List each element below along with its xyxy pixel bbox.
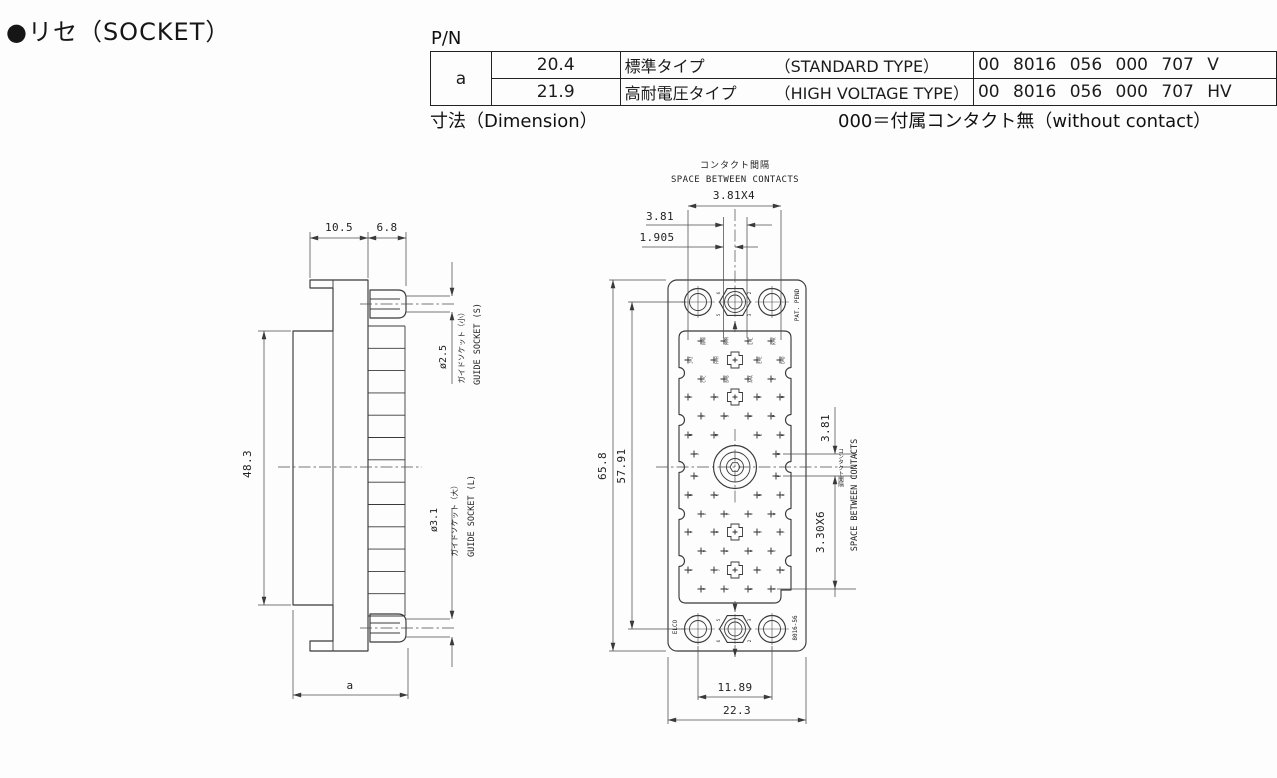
contact-label: J [695, 453, 700, 455]
contact-label: C C [702, 375, 707, 383]
guide-small-diameter: ø2.5 [438, 345, 449, 369]
space-between-contacts-jp-top: コンタクト間隔 [700, 160, 770, 171]
contact-label: B [758, 493, 763, 496]
dim-65-8: 65.8 [596, 452, 609, 480]
dim-11-89: 11.89 [717, 681, 752, 694]
guide-small-label-en: GUIDE SOCKET (S) [473, 303, 483, 385]
contact-label: S [725, 414, 730, 417]
side-view-dimensions [258, 232, 452, 699]
contact-label: K [781, 433, 786, 436]
contact-label: R [749, 414, 754, 417]
contact-label: z [702, 512, 707, 515]
coding-digit: 6 [716, 291, 722, 294]
contact-label: U [781, 395, 786, 398]
polarizer-cross [733, 358, 738, 363]
contact-label: n [725, 549, 730, 552]
contact-label: M [715, 433, 720, 436]
dim-3-81-right: 3.81 [819, 414, 832, 442]
contact-label: E [777, 474, 782, 477]
space-between-contacts-en-side: SPACE BETWEEN CONTACTS [850, 439, 860, 552]
contact-label: w [772, 512, 777, 515]
guide-large-label-jp: ガイドソケット（大） [449, 482, 459, 557]
dim-a: a [346, 679, 353, 692]
coding-digit: 2 [747, 639, 753, 642]
contact-label: H [777, 452, 782, 455]
space-between-contacts-jp-side: コンタクト間隔 [838, 448, 844, 489]
model-marking: 8016-56 [792, 615, 799, 641]
contact-label: L L [749, 337, 754, 345]
contact-label: p [702, 549, 707, 552]
contact-label: k [689, 568, 694, 571]
coding-digit: 2 [747, 291, 753, 294]
contact-label: V [758, 395, 763, 398]
contact-label: A A [749, 375, 754, 383]
contact-label: F [695, 474, 700, 477]
contact-label: H H [715, 356, 720, 364]
technical-drawing: 10.5 6.8 48.3 a ø2.5 ガイドソケット（小） GUIDE SO… [0, 0, 1277, 778]
side-view: 10.5 6.8 48.3 a ø2.5 ガイドソケット（小） GUIDE SO… [241, 221, 483, 699]
contact-label: b [749, 587, 754, 590]
contact-label: m [749, 549, 754, 552]
contact-label: e [781, 568, 786, 571]
contact-label: D [689, 493, 694, 496]
contact-label: T [702, 414, 707, 417]
contact-label: N [689, 433, 694, 436]
dim-57-91: 57.91 [615, 448, 628, 483]
contact-label: f [758, 568, 763, 571]
dim-1-905: 1.905 [639, 231, 674, 244]
coding-digit: 5 [716, 313, 722, 316]
contact-label: d [702, 587, 707, 590]
contact-label: A [781, 493, 786, 496]
space-between-contacts-en-top: SPACE BETWEEN CONTACTS [671, 175, 799, 185]
dim-3-81x4: 3.81X4 [713, 189, 755, 202]
contact-label: N N [702, 337, 707, 345]
contact-label: P [772, 414, 777, 417]
front-view: N NM ML LK KJ JH HE ED DC CB BA AZYXVUTS… [596, 160, 860, 724]
coding-digit: 3 [747, 618, 753, 621]
dim-48-3: 48.3 [241, 450, 254, 478]
contact-label: s [758, 530, 763, 533]
contact-label: j [715, 569, 720, 571]
coding-digit: 6 [716, 639, 722, 642]
contact-label: r [781, 530, 786, 533]
dim-3-81-top: 3.81 [646, 210, 674, 223]
contact-label: x [749, 512, 754, 515]
front-view-dimensions [609, 206, 856, 724]
contact-label: Y [689, 395, 694, 398]
coding-digit: 5 [716, 618, 722, 621]
contact-label: J J [689, 356, 694, 363]
contact-label: M M [725, 337, 730, 345]
coding-digit: 3 [747, 313, 753, 316]
dim-10-5: 10.5 [325, 221, 353, 234]
dim-6-8: 6.8 [376, 221, 397, 234]
dim-22-3: 22.3 [723, 704, 751, 717]
brand-marking: ELCO [672, 619, 679, 634]
contact-label: B B [725, 375, 730, 383]
contact-label: v [689, 530, 694, 533]
drawing-page: ●リセ（SOCKET） P/N a 20.4 標準タイプ（STANDARD TY… [0, 0, 1277, 778]
polarizer-cross [733, 530, 738, 535]
contact-label: a [772, 587, 777, 590]
contact-label: c [725, 587, 730, 590]
polarizer-cross [733, 568, 738, 573]
contact-label: K K [772, 337, 777, 345]
contact-label: Z [772, 377, 777, 380]
polarizer-cross [733, 395, 738, 400]
guide-large-label-en: GUIDE SOCKET (L) [467, 475, 477, 557]
contact-label: u [715, 530, 720, 533]
contact-label: C [715, 493, 720, 496]
pat-pend-marking: PAT. PEND [794, 288, 801, 321]
contact-label: E E [758, 356, 763, 364]
contact-label: X [715, 395, 720, 398]
dim-3-30x6: 3.30X6 [814, 511, 827, 553]
contact-label: y [725, 512, 730, 515]
contact-label: l [772, 549, 777, 552]
contact-label: L [758, 433, 763, 436]
side-view-outline [293, 280, 368, 651]
contact-label: D D [781, 356, 786, 364]
guide-small-label-jp: ガイドソケット（小） [456, 309, 466, 384]
contact-comb [368, 326, 405, 616]
guide-large-diameter: ø3.1 [429, 508, 440, 532]
